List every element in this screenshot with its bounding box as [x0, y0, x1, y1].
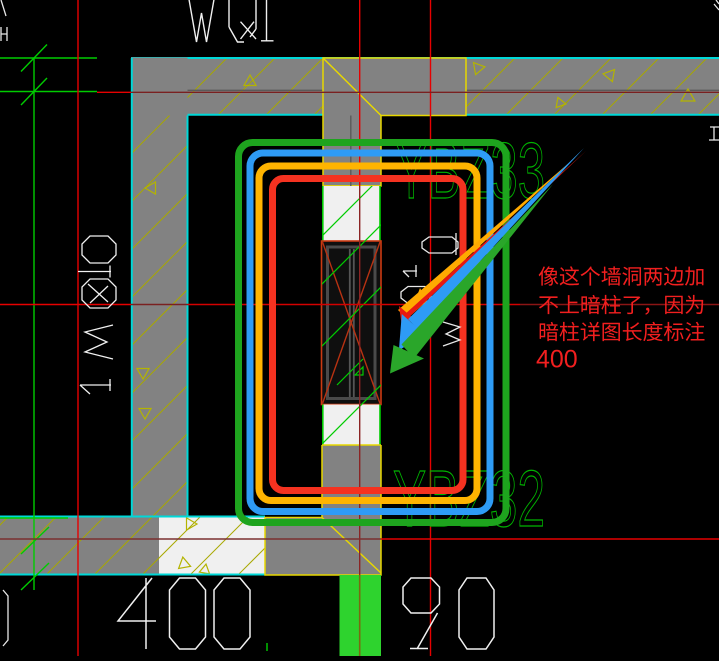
svg-text:400: 400 — [536, 346, 578, 374]
